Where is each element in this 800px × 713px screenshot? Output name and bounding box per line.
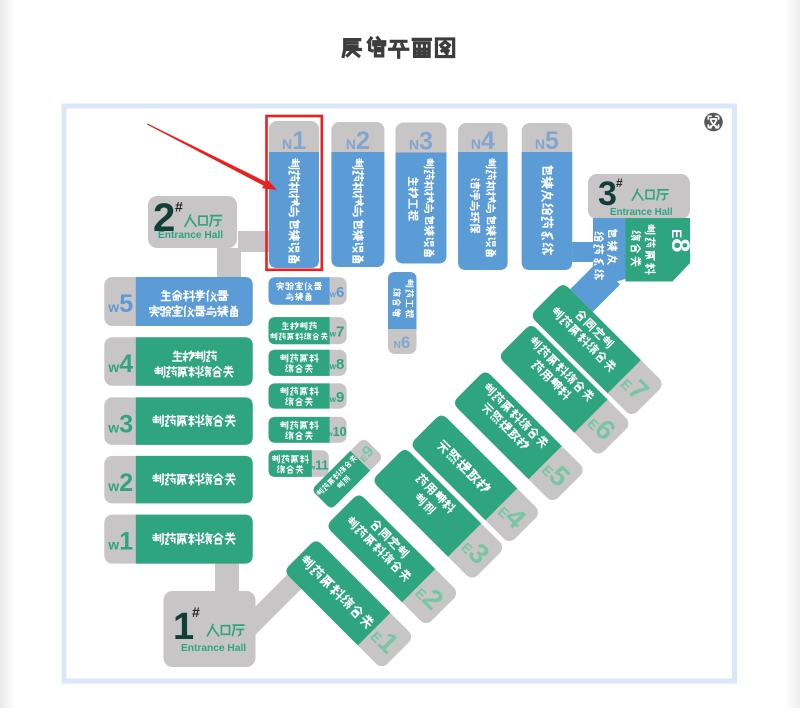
- svg-text:Entrance Hall: Entrance Hall: [610, 207, 673, 218]
- svg-text:#: #: [616, 176, 623, 190]
- svg-text:Entrance Hall: Entrance Hall: [158, 230, 223, 241]
- svg-text:#: #: [175, 199, 183, 215]
- svg-text:#: #: [192, 604, 200, 620]
- svg-text:1: 1: [173, 606, 194, 648]
- svg-text:Entrance Hall: Entrance Hall: [181, 643, 246, 654]
